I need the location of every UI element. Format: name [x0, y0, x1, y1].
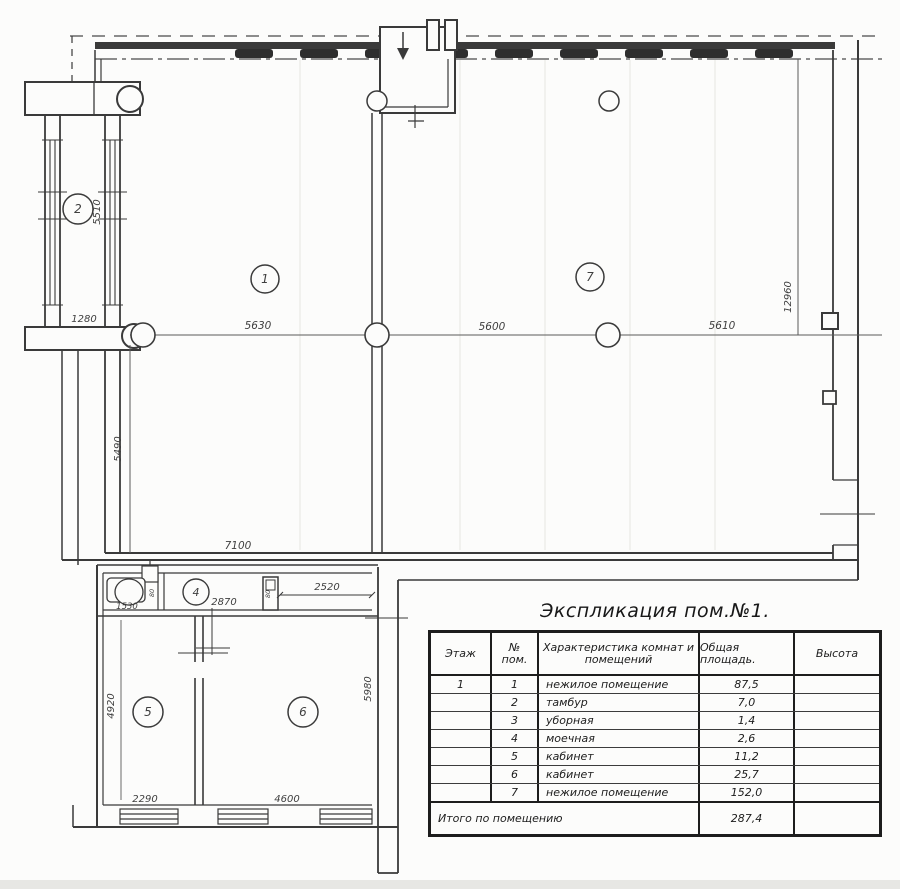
cell-description: моечная: [539, 730, 700, 747]
cell-description: нежилое помещение: [539, 676, 700, 693]
room-1-number: 1: [261, 272, 269, 286]
total-height: [795, 803, 879, 834]
dimension-2870: 2870: [211, 597, 236, 608]
header-height: Высота: [795, 633, 879, 674]
table-row: 1 1 нежилое помещение 87,5: [431, 674, 879, 693]
dimension-5490: 5490: [113, 436, 124, 461]
dimension-1280: 1280: [71, 314, 96, 325]
cell-floor: [431, 730, 492, 747]
cell-floor: [431, 748, 492, 765]
dimension-12960: 12960: [783, 281, 794, 313]
room-5-number: 5: [144, 705, 152, 719]
cell-room-number: 3: [492, 712, 539, 729]
table-row: 6 кабинет 25,7: [431, 765, 879, 783]
cell-area: 11,2: [700, 748, 795, 765]
cell-area: 152,0: [700, 784, 795, 801]
north-wall: [70, 36, 882, 59]
window-hatch: [120, 809, 372, 824]
header-room-number: № пом.: [492, 633, 539, 674]
axis-dimension-line: [130, 59, 882, 553]
cell-height: [795, 712, 879, 729]
cell-description: тамбур: [539, 694, 700, 711]
cell-height: [795, 676, 879, 693]
header-floor: Этаж: [431, 633, 492, 674]
wall-hatch-blobs: [235, 49, 793, 58]
scan-artifact-lines: [300, 60, 715, 550]
dimension-door-80: 80: [148, 589, 156, 597]
cell-room-number: 2: [492, 694, 539, 711]
explication-block: Экспликация пом.№1. Этаж № пом. Характер…: [428, 596, 882, 837]
cell-area: 2,6: [700, 730, 795, 747]
main-hall-walls: [62, 40, 875, 580]
table-row: 5 кабинет 11,2: [431, 747, 879, 765]
dimension-1530: 1530: [116, 602, 138, 612]
table-row: 2 тамбур 7,0: [431, 693, 879, 711]
cell-area: 25,7: [700, 766, 795, 783]
cell-height: [795, 784, 879, 801]
column-marker: [599, 91, 619, 111]
dimension-5630: 5630: [245, 320, 272, 332]
cell-room-number: 4: [492, 730, 539, 747]
cell-description: кабинет: [539, 766, 700, 783]
cell-height: [795, 730, 879, 747]
dimension-door-80b: 80: [264, 590, 272, 598]
cell-floor: [431, 766, 492, 783]
table-row: 4 моечная 2,6: [431, 729, 879, 747]
entry-vestibule: [380, 20, 457, 128]
cell-room-number: 7: [492, 784, 539, 801]
cell-floor: [431, 784, 492, 801]
cell-floor: 1: [431, 676, 492, 693]
table-row: 7 нежилое помещение 152,0: [431, 783, 879, 801]
dimension-5510: 5510: [92, 199, 103, 224]
cell-description: кабинет: [539, 748, 700, 765]
cell-room-number: 5: [492, 748, 539, 765]
cell-description: уборная: [539, 712, 700, 729]
cell-area: 87,5: [700, 676, 795, 693]
cell-height: [795, 694, 879, 711]
header-description: Характеристика комнат и помещений: [539, 633, 700, 674]
tambour-structure: [25, 36, 146, 565]
explication-table: Этаж № пом. Характеристика комнат и поме…: [428, 630, 882, 837]
dimension-4600: 4600: [274, 794, 299, 805]
header-area: Общая площадь.: [700, 633, 795, 674]
floor-plan-sheet: 2 5510 1280 5630 5600 5610 12960: [0, 0, 900, 889]
cell-room-number: 1: [492, 676, 539, 693]
dimension-5610: 5610: [709, 320, 736, 332]
cell-description: нежилое помещение: [539, 784, 700, 801]
column-marker: [367, 91, 387, 111]
cell-area: 1,4: [700, 712, 795, 729]
table-header-row: Этаж № пом. Характеристика комнат и поме…: [431, 633, 879, 674]
total-label: Итого по помещению: [431, 803, 700, 834]
scan-edge-strip: [0, 880, 900, 889]
cell-area: 7,0: [700, 694, 795, 711]
total-area: 287,4: [700, 803, 795, 834]
dimension-5980: 5980: [363, 676, 374, 701]
cell-floor: [431, 712, 492, 729]
cell-room-number: 6: [492, 766, 539, 783]
dimension-4920: 4920: [106, 693, 117, 718]
room-6-number: 6: [299, 705, 307, 719]
dimension-5600: 5600: [479, 321, 506, 333]
dimension-2520: 2520: [314, 582, 339, 593]
cell-height: [795, 748, 879, 765]
table-total-row: Итого по помещению 287,4: [431, 801, 879, 834]
table-row: 3 уборная 1,4: [431, 711, 879, 729]
dimension-7100: 7100: [225, 540, 252, 552]
dimension-2290: 2290: [132, 794, 157, 805]
cell-floor: [431, 694, 492, 711]
room-2-number: 2: [74, 202, 82, 216]
room-4-number: 4: [193, 586, 200, 599]
cell-height: [795, 766, 879, 783]
explication-title: Экспликация пом.№1.: [428, 596, 882, 630]
room-7-number: 7: [586, 270, 594, 284]
